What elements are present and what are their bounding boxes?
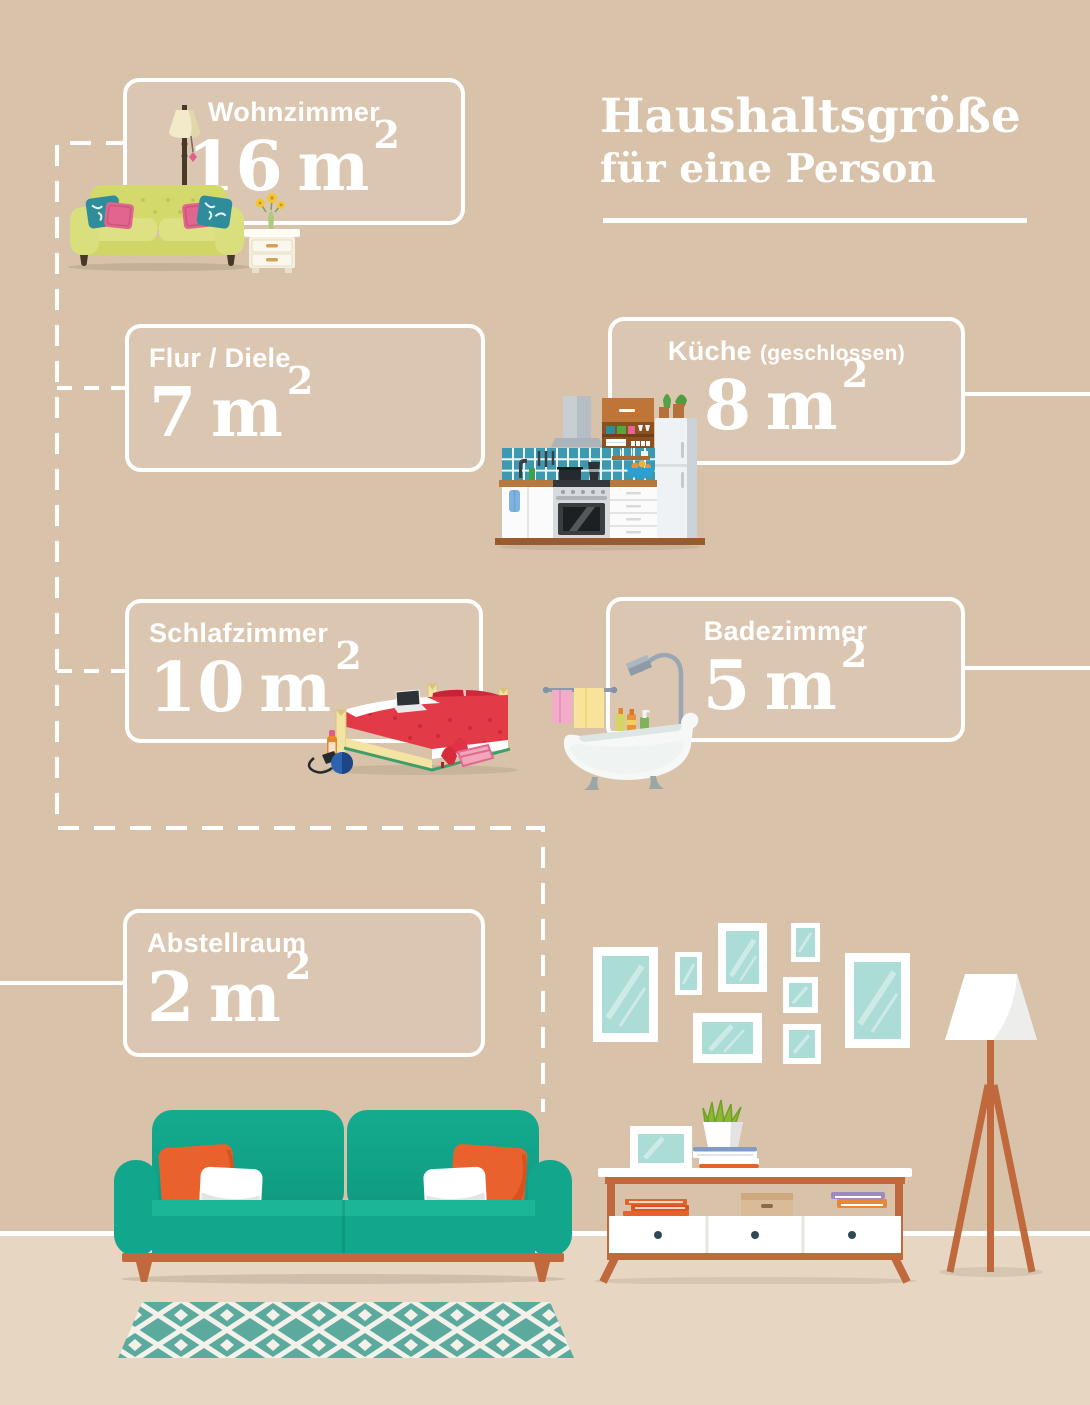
sofa-shadow xyxy=(68,263,252,271)
shelf-books-left xyxy=(623,1199,689,1216)
teal-sofa-illustration xyxy=(108,1098,578,1286)
range-hood-icon xyxy=(551,396,603,447)
title-line-2: für eine Person xyxy=(600,149,1021,190)
yellow-towel xyxy=(574,688,604,728)
room-box-flur-diele: Flur / Diele 7m2 xyxy=(125,324,485,472)
fridge-icon xyxy=(655,394,697,540)
pink-towel xyxy=(552,690,572,723)
room-size: 7m2 xyxy=(149,378,461,449)
room-label: Badezimmer xyxy=(630,615,941,647)
lamp-pole xyxy=(987,1036,994,1272)
pink-pillow xyxy=(104,202,134,230)
olive-sofa-icon xyxy=(70,185,244,266)
drawer-knob xyxy=(654,1231,662,1239)
upper-cabinet-icon xyxy=(602,398,654,448)
tripod-floor-lamp-illustration xyxy=(935,970,1047,1278)
picture-frame xyxy=(693,1013,762,1063)
shelf-books-right xyxy=(831,1192,887,1208)
tub-foot xyxy=(649,776,664,789)
room-label-suffix: (geschlossen) xyxy=(760,342,905,365)
kitchen-baseboard xyxy=(495,538,705,545)
sideboard-bottom-rail xyxy=(607,1253,903,1260)
picture-frame xyxy=(593,947,658,1042)
sofa-leg xyxy=(80,255,88,266)
rug-illustration xyxy=(112,1300,580,1362)
room-label: Küche(geschlossen) xyxy=(632,335,941,367)
sideboard-drawers xyxy=(609,1216,901,1255)
picture-frame xyxy=(675,952,702,995)
room-label: Schlafzimmer xyxy=(149,617,459,649)
kitchen-illustration xyxy=(495,390,710,552)
lamp-shade xyxy=(945,974,1037,1040)
tabletop-photo-frame xyxy=(630,1126,692,1171)
picture-frame xyxy=(791,923,820,962)
living-room-illustration xyxy=(60,100,305,275)
tub-foot xyxy=(584,777,599,790)
drawer-stack xyxy=(610,487,657,539)
picture-frame xyxy=(783,977,818,1013)
picture-frame xyxy=(845,953,910,1048)
sideboard-top xyxy=(598,1168,912,1177)
room-size: 2m2 xyxy=(147,963,461,1034)
title-line-1: Haushaltsgröße xyxy=(600,92,1021,141)
room-box-abstellraum: Abstellraum 2m2 xyxy=(123,909,485,1057)
page-title: Haushaltsgröße für eine Person xyxy=(600,92,1021,190)
flowers xyxy=(256,193,286,212)
floor-lamp-icon xyxy=(169,105,200,189)
side-table-icon xyxy=(244,193,300,273)
stacked-books-icon xyxy=(693,1147,759,1168)
infographic-haushaltsgroesse: Haushaltsgröße für eine Person Wohnzimme… xyxy=(0,0,1090,1405)
drawer-knob xyxy=(751,1231,759,1239)
sideboard-illustration xyxy=(595,1098,917,1284)
picture-frame xyxy=(718,923,767,992)
teal-floral-pillow xyxy=(196,195,233,229)
bathroom-illustration xyxy=(540,645,708,797)
picture-frame xyxy=(783,1024,821,1064)
drawer-knob xyxy=(848,1231,856,1239)
gallery-wall-illustration xyxy=(590,918,920,1068)
title-underline xyxy=(603,218,1027,223)
storage-box-icon xyxy=(741,1193,793,1216)
potted-plant-icon xyxy=(703,1100,743,1147)
bedroom-illustration xyxy=(300,648,525,780)
towel-rail-icon xyxy=(543,687,617,728)
sofa-base xyxy=(122,1253,564,1262)
